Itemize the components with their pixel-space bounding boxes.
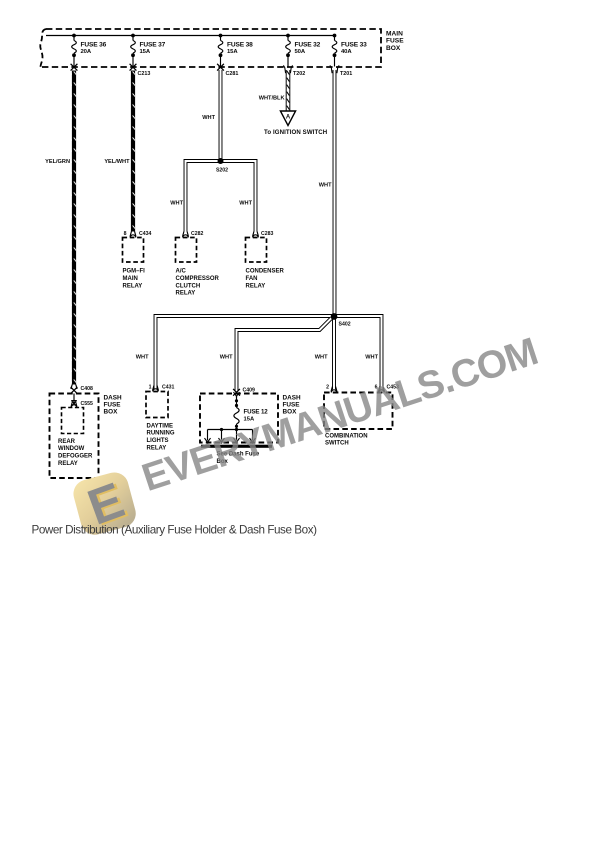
svg-text:50A: 50A	[295, 49, 306, 55]
svg-text:YEL/GRN: YEL/GRN	[45, 159, 70, 165]
svg-text:RELAY: RELAY	[246, 283, 266, 289]
svg-text:2: 2	[326, 384, 329, 390]
svg-text:WHT: WHT	[365, 354, 378, 360]
svg-text:C409: C409	[243, 387, 256, 393]
svg-text:C408: C408	[81, 386, 94, 392]
svg-text:FUSE 36: FUSE 36	[81, 41, 107, 48]
svg-text:DASH: DASH	[104, 394, 122, 401]
svg-text:C434: C434	[139, 231, 152, 237]
svg-text:WHT: WHT	[136, 354, 149, 360]
svg-text:20A: 20A	[81, 49, 92, 55]
svg-text:RELAY: RELAY	[123, 283, 143, 289]
svg-text:FUSE 37: FUSE 37	[140, 41, 166, 48]
svg-text:C431: C431	[162, 384, 175, 390]
svg-text:Power Distribution (Auxiliary: Power Distribution (Auxiliary Fuse Holde…	[32, 524, 318, 537]
svg-text:WINDOW: WINDOW	[58, 446, 85, 452]
svg-text:COMPRESSOR: COMPRESSOR	[176, 276, 220, 282]
svg-text:DASH: DASH	[283, 394, 301, 401]
svg-text:FUSE: FUSE	[104, 402, 122, 409]
svg-text:RUNNING: RUNNING	[147, 431, 175, 437]
svg-text:A/C: A/C	[176, 269, 187, 275]
svg-text:BOX: BOX	[386, 45, 401, 52]
svg-text:YEL/WHT: YEL/WHT	[104, 159, 130, 165]
svg-text:40A: 40A	[341, 49, 352, 55]
svg-text:FAN: FAN	[246, 276, 258, 282]
svg-text:C283: C283	[261, 231, 274, 237]
svg-text:S402: S402	[339, 322, 351, 328]
svg-text:SWITCH: SWITCH	[325, 441, 349, 447]
svg-text:EVERYMANUALS.COM: EVERYMANUALS.COM	[137, 330, 543, 500]
svg-text:C282: C282	[191, 231, 204, 237]
svg-text:RELAY: RELAY	[58, 461, 78, 467]
svg-text:WHT: WHT	[319, 183, 332, 189]
svg-text:T202: T202	[293, 71, 305, 77]
svg-text:A: A	[286, 115, 291, 121]
svg-text:15A: 15A	[140, 49, 151, 55]
svg-text:PGM–FI: PGM–FI	[123, 269, 146, 275]
svg-text:FUSE 12: FUSE 12	[244, 408, 269, 415]
svg-text:REAR: REAR	[58, 439, 76, 445]
svg-text:MAIN: MAIN	[386, 30, 403, 37]
svg-text:MAIN: MAIN	[123, 276, 138, 282]
svg-text:LIGHTS: LIGHTS	[147, 438, 169, 444]
svg-text:WHT: WHT	[220, 354, 233, 360]
svg-text:DEFOGGER: DEFOGGER	[58, 454, 93, 460]
svg-text:FUSE: FUSE	[386, 38, 404, 45]
svg-text:S202: S202	[216, 168, 228, 174]
svg-text:WHT: WHT	[239, 201, 252, 207]
svg-text:CLUTCH: CLUTCH	[176, 283, 201, 289]
svg-text:15A: 15A	[227, 49, 238, 55]
svg-text:RELAY: RELAY	[176, 291, 196, 297]
svg-text:CONDENSER: CONDENSER	[246, 269, 285, 275]
svg-text:WHT: WHT	[202, 115, 215, 121]
svg-text:FUSE 38: FUSE 38	[227, 41, 253, 48]
svg-text:DAYTIME: DAYTIME	[147, 423, 173, 429]
svg-text:C555: C555	[81, 401, 94, 407]
svg-text:WHT: WHT	[315, 354, 328, 360]
svg-text:BOX: BOX	[104, 409, 119, 416]
svg-text:1: 1	[149, 384, 152, 390]
svg-text:T201: T201	[340, 71, 352, 77]
svg-text:FUSE 32: FUSE 32	[295, 41, 321, 48]
svg-text:WHT/BLK: WHT/BLK	[259, 96, 285, 102]
svg-text:FUSE 33: FUSE 33	[341, 41, 367, 48]
svg-text:C281: C281	[226, 71, 239, 77]
svg-text:To IGNITION SWITCH: To IGNITION SWITCH	[264, 129, 327, 136]
svg-text:C213: C213	[138, 71, 151, 77]
svg-text:8: 8	[124, 231, 127, 237]
svg-text:WHT: WHT	[170, 201, 183, 207]
